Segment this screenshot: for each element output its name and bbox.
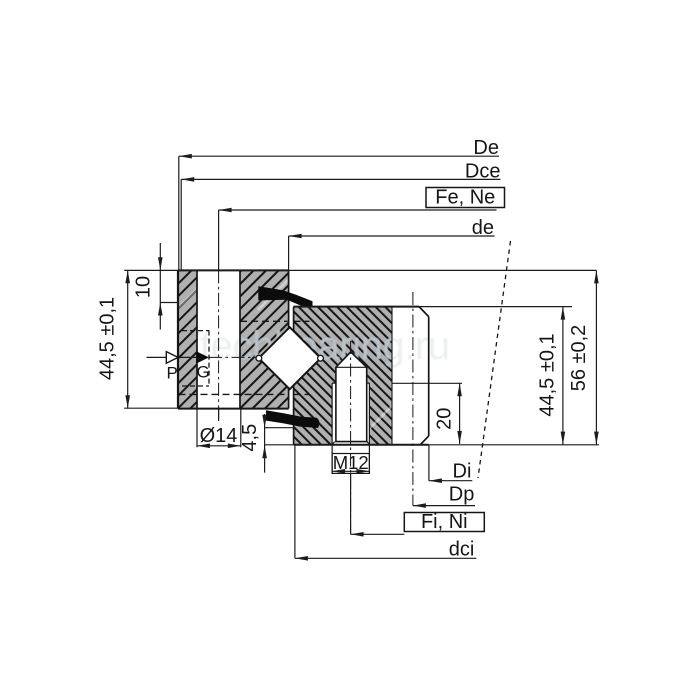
svg-text:Ø14: Ø14 (200, 425, 238, 447)
svg-text:de: de (472, 217, 494, 239)
svg-text:44,5 ±0,1: 44,5 ±0,1 (537, 333, 559, 416)
svg-text:10: 10 (133, 276, 155, 298)
svg-text:G: G (197, 363, 210, 382)
svg-text:Fe, Ne: Fe, Ne (435, 187, 495, 209)
svg-text:Dce: Dce (465, 160, 501, 182)
svg-text:M12: M12 (333, 452, 369, 473)
svg-text:dci: dci (449, 538, 475, 560)
svg-text:P: P (167, 364, 178, 383)
svg-text:Fi, Ni: Fi, Ni (421, 511, 468, 533)
svg-text:44,5 ±0,1: 44,5 ±0,1 (97, 297, 119, 380)
svg-text:Dp: Dp (449, 483, 475, 505)
svg-text:20: 20 (434, 408, 456, 430)
svg-text:56 ±0,2: 56 ±0,2 (568, 325, 590, 392)
svg-text:Di: Di (453, 460, 472, 482)
svg-text:De: De (473, 137, 499, 159)
svg-text:4,5: 4,5 (239, 424, 261, 452)
